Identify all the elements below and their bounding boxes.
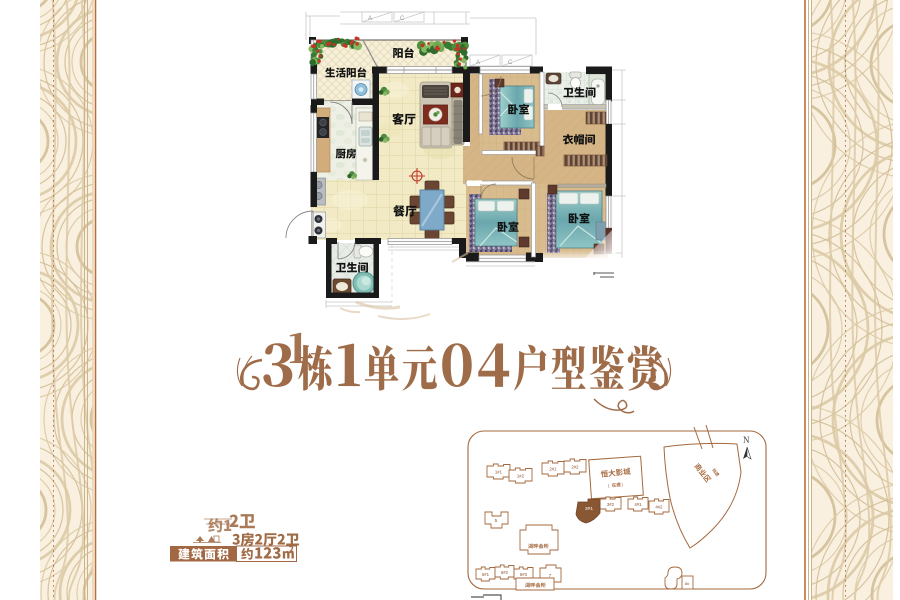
svg-text:3#2: 3#2 [607,502,615,507]
svg-text:2#2: 2#2 [571,465,579,470]
svg-text:6#1: 6#1 [482,572,490,577]
svg-text:8#: 8# [685,581,690,586]
svg-text:A: A [368,16,372,22]
svg-text:6#3: 6#3 [520,572,528,577]
svg-text:4#2: 4#2 [655,505,663,510]
svg-text:4#1: 4#1 [634,502,642,507]
svg-text:C: C [400,16,405,22]
svg-text:1#1: 1#1 [495,470,503,475]
svg-text:2#1: 2#1 [549,467,557,472]
svg-text:1#2: 1#2 [517,474,525,479]
svg-text:A: A [476,60,480,66]
svg-text:3#1: 3#1 [585,506,593,512]
svg-text:N: N [743,435,750,445]
svg-text:5: 5 [495,518,498,524]
svg-text:6#2: 6#2 [501,570,509,575]
svg-text:C: C [508,60,513,66]
